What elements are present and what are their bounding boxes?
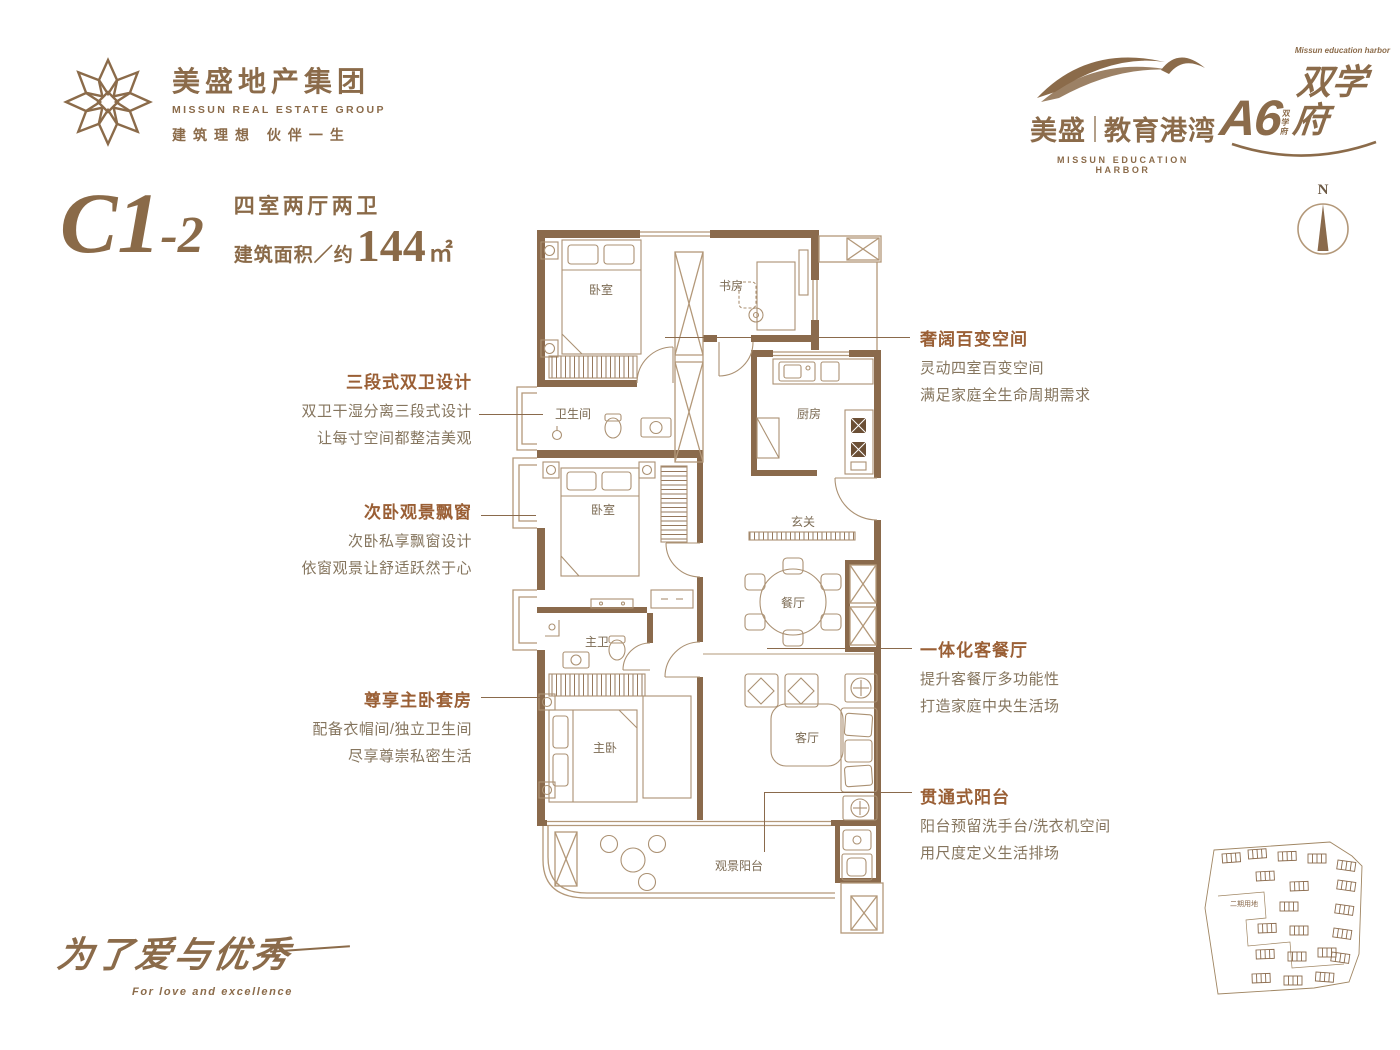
annotation-body: 次卧私享飘窗设计 依窗观景让舒适跃然于心: [190, 528, 472, 582]
education-name-left: 美盛: [1030, 109, 1086, 148]
group-name-en: MISSUN REAL ESTATE GROUP: [172, 104, 386, 116]
room-label-balcony: 观景阳台: [715, 858, 763, 873]
room-label-living: 客厅: [795, 730, 819, 745]
room-label-kitchen: 厨房: [797, 406, 821, 421]
leader-line-right-1: [665, 337, 910, 338]
group-logo: 美盛地产集团 MISSUN REAL ESTATE GROUP 建筑理想 伙伴一…: [60, 54, 386, 150]
annotation-title: 一体化客餐厅: [920, 636, 1202, 661]
compass-north-label: N: [1292, 182, 1354, 199]
leader-line-left-1: [479, 414, 543, 415]
annotation-body: 灵动四室百变空间 满足家庭全生命周期需求: [920, 355, 1202, 409]
room-label-master-bedroom: 主卧: [593, 741, 617, 755]
annotation-body: 提升客餐厅多功能性 打造家庭中央生活场: [920, 666, 1202, 720]
room-label-foyer: 玄关: [791, 514, 815, 529]
wing-swoosh-icon: [1033, 40, 1213, 106]
annotation-title: 尊享主卧套房: [190, 686, 472, 711]
project-logo-vertical: 双学府: [1278, 109, 1292, 136]
project-logo: Missun education harbor A6 双学府 双学府: [1222, 46, 1392, 167]
unit-code-main: C1: [60, 175, 160, 271]
compass-icon: [1295, 201, 1351, 257]
project-tagline-en: Missun education harbor: [1295, 46, 1390, 56]
flower-logo-icon: [60, 54, 156, 150]
room-label-bedroom-mid: 卧室: [591, 502, 615, 517]
room-label-bathroom: 卫生间: [555, 407, 591, 421]
annotation-body: 阳台预留洗手台/洗衣机空间 用尺度定义生活排场: [920, 813, 1202, 867]
annotation-title: 次卧观景飘窗: [190, 498, 472, 523]
unit-layout: 四室两厅两卫: [234, 190, 453, 220]
unit-code: C1-2: [60, 186, 204, 265]
unit-title: C1-2 四室两厅两卫 建筑面积／约 144 ㎡: [60, 186, 453, 268]
area-value: 144: [357, 226, 426, 266]
project-logo-suffix: 双学府: [1291, 64, 1396, 140]
leader-line-right-3-vertical: [764, 792, 765, 852]
walls: [537, 230, 881, 883]
leader-line-right-3: [764, 792, 912, 793]
site-plan-label: 二期用地: [1230, 899, 1258, 908]
leader-line-left-3: [481, 697, 545, 698]
compass: N: [1292, 182, 1354, 262]
unit-code-sub: -2: [160, 207, 203, 264]
leader-line-left-2: [481, 515, 536, 516]
annotation-living-dining: 一体化客餐厅 提升客餐厅多功能性 打造家庭中央生活场: [920, 636, 1202, 720]
annotation-triple-bath: 三段式双卫设计 双卫干湿分离三段式设计 让每寸空间都整洁美观: [190, 368, 472, 452]
annotation-body: 双卫干湿分离三段式设计 让每寸空间都整洁美观: [190, 398, 472, 452]
area-prefix: 建筑面积／约: [234, 240, 354, 267]
slogan-cn: 为了爱与优秀: [54, 926, 296, 978]
group-name: 美盛地产集团: [172, 60, 386, 100]
annotation-body: 配备衣帽间/独立卫生间 尽享尊崇私密生活: [190, 716, 472, 770]
annotation-master-suite: 尊享主卧套房 配备衣帽间/独立卫生间 尽享尊崇私密生活: [190, 686, 472, 770]
annotation-bay-window: 次卧观景飘窗 次卧私享飘窗设计 依窗观景让舒适跃然于心: [190, 498, 472, 582]
room-label-dining: 餐厅: [781, 595, 805, 610]
room-label-study: 书房: [719, 278, 743, 293]
floor-plan: 卧室 书房 卫生间 厨房 玄关 餐厅 卧室 主卫 主卧 客厅 观景阳台: [505, 222, 905, 937]
annotation-title: 奢阔百变空间: [920, 325, 1202, 350]
site-plan: 二期用地: [1192, 836, 1377, 1004]
leader-line-right-2: [767, 648, 912, 649]
room-label-bedroom-top: 卧室: [589, 282, 613, 297]
annotation-title: 贯通式阳台: [920, 783, 1202, 808]
area-unit: ㎡: [429, 233, 453, 268]
divider: [1094, 116, 1096, 142]
annotation-balcony: 贯通式阳台 阳台预留洗手台/洗衣机空间 用尺度定义生活排场: [920, 783, 1202, 867]
room-label-master-bath: 主卫: [585, 635, 609, 649]
project-logo-main: A6: [1218, 96, 1283, 140]
footer-slogan: 为了爱与优秀 For love and excellence: [58, 926, 293, 998]
education-name-en: MISSUN EDUCATION HARBOR: [1028, 155, 1218, 175]
annotation-flex-space: 奢阔百变空间 灵动四室百变空间 满足家庭全生命周期需求: [920, 325, 1202, 409]
education-harbor-logo: 美盛 教育港湾 MISSUN EDUCATION HARBOR: [1028, 40, 1218, 175]
floorplan-poster: 美盛地产集团 MISSUN REAL ESTATE GROUP 建筑理想 伙伴一…: [0, 0, 1400, 1050]
education-name-right: 教育港湾: [1104, 109, 1216, 148]
annotation-title: 三段式双卫设计: [190, 368, 472, 393]
group-slogan: 建筑理想 伙伴一生: [172, 125, 386, 145]
slogan-en: For love and excellence: [132, 986, 293, 998]
